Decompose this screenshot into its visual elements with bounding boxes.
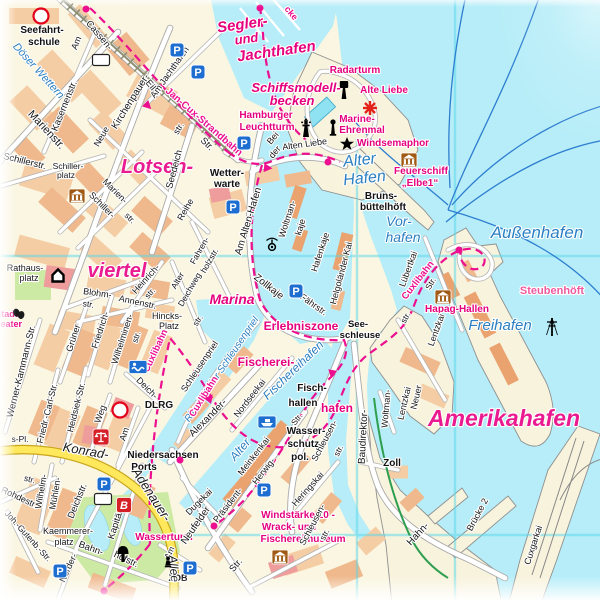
- route-dot-icon: [101, 588, 108, 595]
- route-dot-icon: [456, 247, 463, 254]
- museum-icon: [69, 189, 85, 203]
- map-label: Hapag-Hallen: [425, 304, 489, 315]
- map-label: Fischerei-: [238, 355, 295, 369]
- parking-icon: [53, 564, 67, 578]
- sbahn-icon: [113, 403, 128, 418]
- map-label: Alter: [341, 150, 377, 171]
- map-label: Hamburger: [239, 110, 292, 121]
- map-label: Radarturm: [330, 65, 381, 76]
- map-label: schule: [28, 37, 60, 48]
- map-label: Kaemmerer-: [43, 526, 93, 536]
- map-label: Hincks-: [152, 311, 182, 321]
- map-label: theater: [0, 319, 23, 329]
- map-label: platz: [54, 537, 74, 547]
- route-dot-icon: [325, 159, 332, 166]
- map-label: Alte Liebe: [360, 85, 408, 96]
- parking-icon: [237, 136, 251, 150]
- map-label: Außenhafen: [490, 223, 584, 242]
- wc-icon: [95, 494, 112, 505]
- map-label: hafen: [385, 229, 420, 245]
- map-label: hallen: [289, 398, 318, 409]
- map-label: Marina: [209, 291, 254, 307]
- map-label: Freihafen: [468, 317, 531, 334]
- map-label: Wetter-: [210, 168, 244, 179]
- pool-icon: [129, 361, 147, 374]
- b-icon: [117, 498, 132, 513]
- museum-icon: [401, 153, 417, 167]
- map-label: Erlebniszone: [264, 319, 339, 333]
- map-label: Bruns-: [365, 191, 397, 202]
- route-dot-icon: [177, 457, 184, 464]
- route-dot-icon: [211, 523, 218, 530]
- parking-icon: [289, 284, 303, 298]
- map-label: pol.: [291, 452, 309, 463]
- map-label: Niedersachsen: [127, 450, 198, 461]
- parking-icon: [183, 561, 197, 575]
- map-label: Feuerschiff: [394, 166, 449, 177]
- map-label: Vor-: [386, 213, 412, 229]
- map-label: hafen: [321, 401, 353, 415]
- map-label: Leuchtturm: [240, 122, 295, 133]
- map-label: Steubenhöft: [520, 285, 584, 297]
- justice-icon: [93, 429, 109, 445]
- viewpoint-star-icon: [363, 101, 377, 115]
- map-label: „Elbe1“: [402, 178, 439, 189]
- map-label: Fisch-: [297, 383, 326, 394]
- map-label: Rathaus-: [7, 263, 44, 273]
- boat-icon: [258, 416, 276, 428]
- route-dot-icon: [257, 5, 264, 12]
- map-label: str.: [82, 298, 95, 309]
- map-label: becken: [270, 93, 315, 108]
- small-green: [138, 546, 162, 566]
- parking-icon: [170, 43, 184, 57]
- museum-icon: [435, 290, 451, 304]
- wc-icon: [93, 55, 110, 66]
- map-label: Ehrenmal: [339, 125, 385, 136]
- map-label: See-: [348, 319, 368, 330]
- parking-icon: [226, 200, 240, 214]
- parking-icon: [257, 483, 271, 497]
- map-label: s-Pl.: [12, 434, 29, 444]
- map-label: schleuse: [340, 330, 381, 341]
- parking-icon: [97, 477, 111, 491]
- map-label: Windsemaphor: [357, 138, 429, 149]
- map-label: DLRG: [145, 400, 174, 411]
- map-canvas[interactable]: P S WC B: [0, 0, 600, 600]
- map-label: Seefahrt-: [20, 25, 63, 36]
- map-label: Marine-: [339, 114, 375, 125]
- map-label: Platz: [159, 321, 180, 331]
- route-dot-icon: [83, 6, 90, 13]
- map-label: warte: [213, 179, 241, 190]
- map-label: büttelhöft: [360, 202, 407, 213]
- map-label: Zoll: [383, 458, 401, 469]
- city-map: P S WC B: [0, 0, 600, 600]
- map-label: platz: [19, 273, 39, 283]
- map-label: Amerikahafen: [427, 405, 580, 431]
- map-label: Wasser-: [287, 426, 326, 437]
- museum-icon: [272, 550, 288, 564]
- parking-icon: [191, 65, 205, 79]
- map-label: platz: [57, 170, 75, 180]
- sbahn-icon: [34, 9, 49, 24]
